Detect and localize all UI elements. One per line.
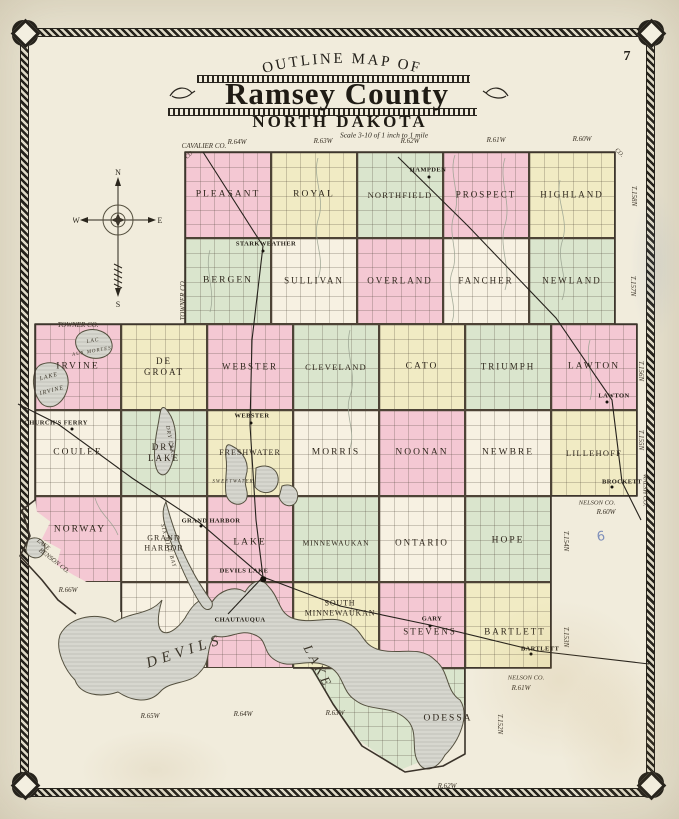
township-label-lawton: LAWTON <box>568 361 620 372</box>
edge-label-r-60w: R.60W <box>573 135 592 143</box>
page-number: 7 <box>624 49 631 65</box>
township-stevens <box>379 582 465 668</box>
township-label-newland: NEWLAND <box>542 276 602 287</box>
edge-label-nelson-co: NELSON CO. <box>579 500 615 507</box>
town-dot-church-s-ferry <box>71 428 74 431</box>
map-scale-note: Scale 3-10 of 1 inch to 1 mile <box>340 131 428 140</box>
town-dot-gary <box>429 625 432 628</box>
compass-n-label: N <box>115 168 121 177</box>
border-left <box>20 28 29 797</box>
edge-label-t-155n: T.155N <box>637 430 645 450</box>
township-label-freshwater: FRESHWATER <box>219 448 281 458</box>
township-label-ontario: ONTARIO <box>395 538 449 549</box>
flourish-left-icon <box>168 84 196 104</box>
edge-label-r-61w: R.61W <box>487 136 506 144</box>
town-label-hampden: HAMPDEN <box>410 167 446 174</box>
township-label-noonan: NOONAN <box>395 447 448 458</box>
town-dot-bartlett <box>530 653 533 656</box>
edge-label-r-61w: R.61W <box>512 684 531 692</box>
town-dot-lawton <box>606 401 609 404</box>
page-title: Ramsey County <box>225 76 449 112</box>
township-label-coulee: COULEE <box>53 447 102 458</box>
town-dot-hampden <box>428 176 431 179</box>
edge-label-t-152n: T.152N <box>496 714 504 734</box>
township-label-hope: HOPE <box>492 535 525 546</box>
township-label-triumph: TRIUMPH <box>481 362 536 373</box>
flourish-right-icon <box>482 84 510 104</box>
edge-label-r-65w: R.65W <box>141 712 160 720</box>
edge-label-r-63w: R.63W <box>314 137 333 145</box>
town-label-grand-harbor: GRAND HARBOR <box>182 518 241 525</box>
edge-label-towner-co: TOWNER CO. <box>179 279 187 320</box>
township-label-lake: LAKE <box>233 537 266 548</box>
town-label-gary: GARY <box>422 616 443 623</box>
edge-label-walsh-co: WALSH CO. <box>642 474 649 507</box>
township-bartlett <box>465 582 551 668</box>
edge-label-nelson-co: NELSON CO. <box>508 675 544 682</box>
town-dot-grand-harbor <box>200 525 203 528</box>
edge-label-t-154n: T.154N <box>562 531 570 551</box>
township-label-sullivan: SULLIVAN <box>284 276 344 287</box>
township-label-royal: ROYAL <box>293 189 335 200</box>
svg-text:OUTLINE MAP OF: OUTLINE MAP OF <box>261 51 424 77</box>
town-label-devils-lake: DEVILS LAKE <box>220 568 269 575</box>
compass-s-label: S <box>116 300 120 308</box>
township-label-south-minnewaukan: SOUTH MINNEWAUKAN <box>305 598 376 617</box>
township-label-minnewaukan: MINNEWAUKAN <box>303 539 370 548</box>
town-dot-webster <box>250 422 253 425</box>
edge-label-cavalier-co: CAVALIER CO. <box>182 142 227 150</box>
border-bottom <box>20 788 655 797</box>
township-label-fancher: FANCHER <box>458 276 513 287</box>
edge-label-towner-co: TOWNER CO. <box>57 321 98 329</box>
town-dot-starkweather <box>262 250 265 253</box>
township-label-bartlett: BARTLETT <box>484 627 545 638</box>
township-label-lillehoff: LILLEHOFF <box>566 448 622 458</box>
edge-label-t-157n: T.157N <box>629 276 637 296</box>
township-label-newbre: NEWBRE <box>482 447 534 458</box>
township-label-cleveland: CLEVELAND <box>305 362 367 372</box>
town-dot-devils-lake <box>260 576 266 582</box>
township-label-odessa: ODESSA <box>424 713 473 724</box>
township-label-bergen: BERGEN <box>203 275 253 286</box>
edge-label-r-66w: R.66W <box>59 586 78 594</box>
arc-title-text: OUTLINE MAP OF <box>261 51 424 77</box>
border-right <box>646 28 655 797</box>
town-label-starkweather: STARKWEATHER <box>236 241 296 248</box>
compass-rose-icon: N E W S <box>73 168 163 308</box>
township-label-cato: CATO <box>406 361 439 372</box>
township-label-highland: HIGHLAND <box>540 190 604 201</box>
township-label-dry-lake: DRY LAKE <box>148 442 180 464</box>
edge-label-r-64w: R.64W <box>228 138 247 146</box>
town-label-webster: WEBSTER <box>235 413 270 420</box>
township-label-northfield: NORTHFIELD <box>368 190 433 200</box>
town-label-brockett: BROCKETT <box>602 479 642 486</box>
town-label-bartlett: BARTLETT <box>521 646 559 653</box>
township-label-overland: OVERLAND <box>367 276 433 287</box>
compass-w-label: W <box>73 216 80 225</box>
atlas-page: PLEASANTROYALNORTHFIELDPROSPECTHIGHLANDB… <box>0 0 679 819</box>
township-label-irvine: IRVINE <box>56 361 99 372</box>
township-label-norway: NORWAY <box>54 524 106 535</box>
lake-label-sweetwater: SWEETWATER <box>212 480 253 485</box>
township-label-prospect: PROSPECT <box>456 190 517 201</box>
compass-e-label: E <box>158 216 163 225</box>
edge-label-r-60w: R.60W <box>597 508 616 516</box>
edge-label-t-158n: T.158N <box>630 186 638 206</box>
township-label-de-groat: DE GROAT <box>144 356 184 378</box>
edge-label-t-153n: T.153N <box>562 627 570 647</box>
township-label-morris: MORRIS <box>312 447 360 458</box>
town-label-chautauqua: CHAUTAUQUA <box>215 617 266 624</box>
township-block <box>207 582 293 668</box>
edge-label-r-63w: R.63W <box>326 709 345 717</box>
edge-label-t-156n: T.156N <box>637 361 645 381</box>
township-label-pleasant: PLEASANT <box>196 189 261 200</box>
page-subtitle: NORTH DAKOTA <box>252 112 427 132</box>
town-dot-brockett <box>611 486 614 489</box>
town-label-church-s-ferry: CHURCH'S FERRY <box>24 420 88 427</box>
border-top <box>20 28 655 37</box>
edge-label-r-64w: R.64W <box>234 710 253 718</box>
edge-label-r-62w: R.62W <box>438 782 457 790</box>
township-label-webster: WEBSTER <box>222 362 278 373</box>
township-label-stevens: STEVENS <box>403 627 457 638</box>
town-label-lawton: LAWTON <box>598 393 629 400</box>
